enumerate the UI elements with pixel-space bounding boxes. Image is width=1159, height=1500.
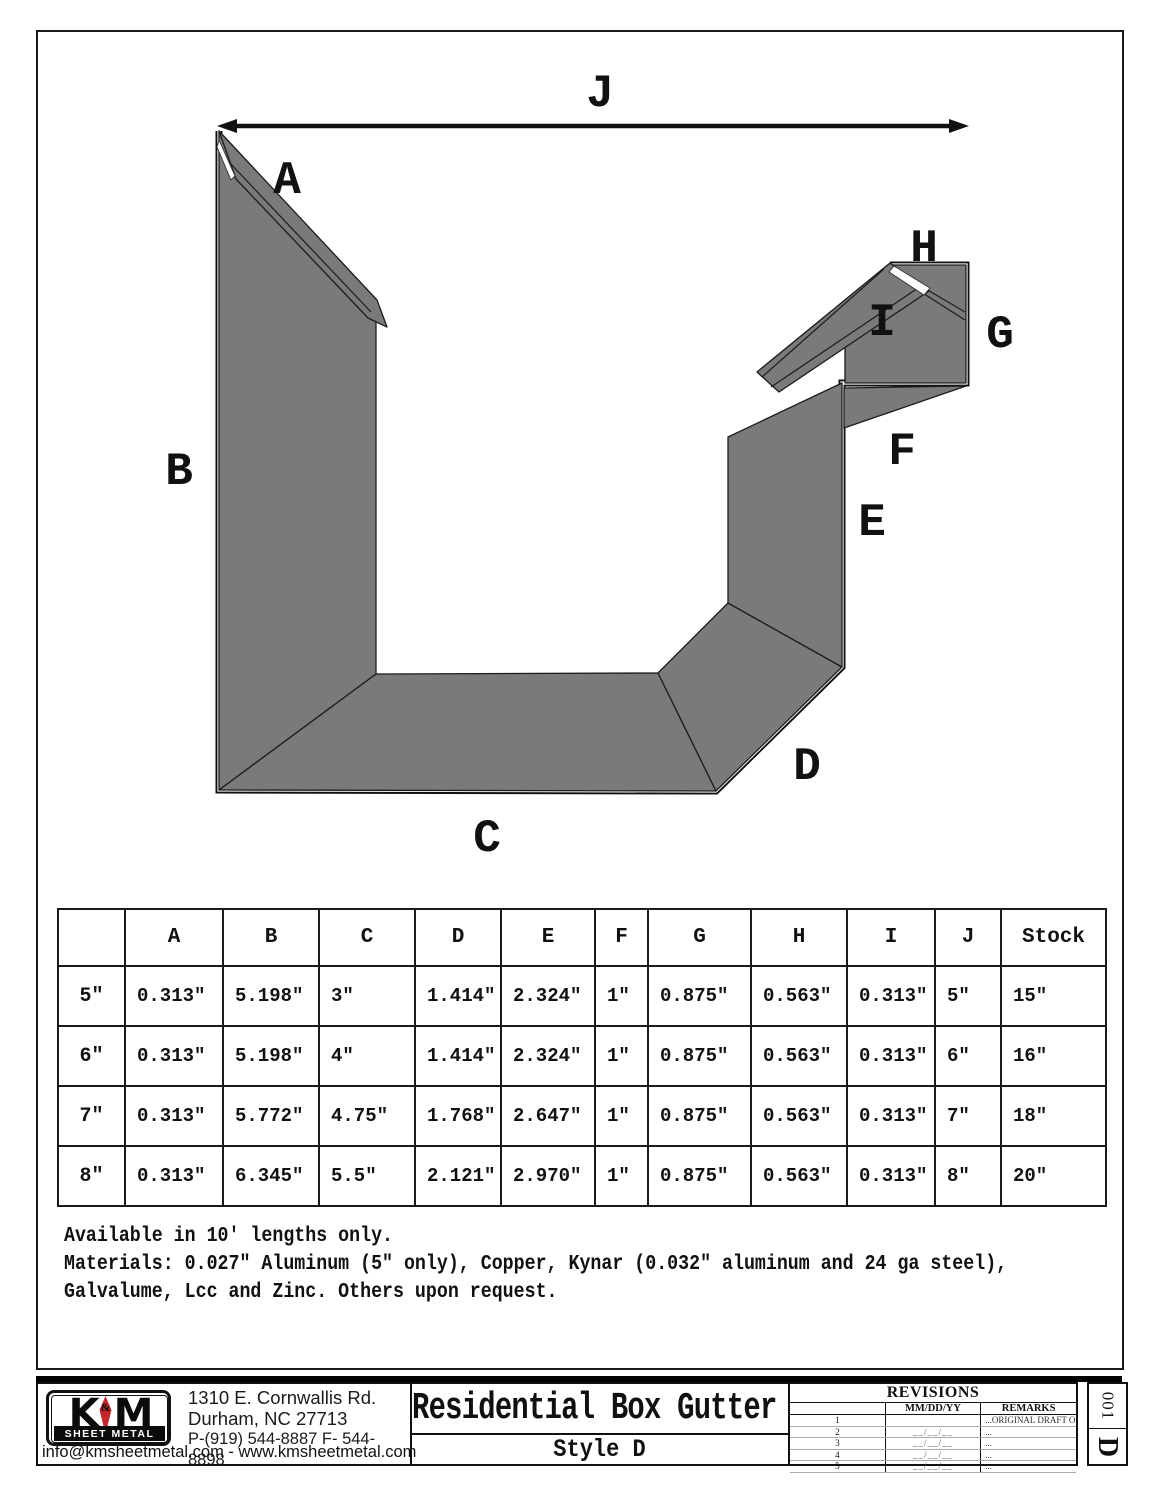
table-cell: 1" (595, 1146, 648, 1206)
revisions-header-row: MM/DD/YY REMARKS (790, 1403, 1076, 1415)
revision-number: 4 (790, 1449, 885, 1461)
table-cell: 1" (595, 1026, 648, 1086)
table-cell: 0.313" (847, 1086, 935, 1146)
sheet-letter: D (1091, 1436, 1123, 1456)
table-cell: 0.563" (751, 1146, 847, 1206)
table-cell: 5.772" (223, 1086, 319, 1146)
table-cell: 5.198" (223, 1026, 319, 1086)
column-header: D (415, 909, 501, 966)
table-cell: 2.970" (501, 1146, 595, 1206)
column-header: E (501, 909, 595, 966)
table-cell: 1.414" (415, 1026, 501, 1086)
table-cell: 0.875" (648, 1146, 751, 1206)
column-header: H (751, 909, 847, 966)
title-cell: Residential Box Gutter Style D (412, 1384, 790, 1464)
table-cell: 0.313" (125, 1086, 223, 1146)
column-header: I (847, 909, 935, 966)
revision-row: 3__/__/__... (790, 1438, 1076, 1450)
table-cell: 3" (319, 966, 415, 1026)
company-logo: K & M SHEET METAL (46, 1390, 171, 1446)
dimension-label-f: F (888, 426, 916, 478)
table-cell: 1" (595, 966, 648, 1026)
table-cell: 0.563" (751, 966, 847, 1026)
table-cell: 6" (935, 1026, 1001, 1086)
revision-row: 5__/__/__... (790, 1461, 1076, 1473)
table-row: 6"0.313"5.198"4"1.414"2.324"1"0.875"0.56… (58, 1026, 1106, 1086)
drawing-style: Style D (412, 1435, 788, 1464)
revision-remarks-header: REMARKS (981, 1403, 1076, 1415)
revision-remarks: ...ORIGINAL DRAFT OF DRAWING (981, 1415, 1076, 1427)
note-line: Galvalume, Lcc and Zinc. Others upon req… (64, 1278, 1007, 1306)
table-cell: 0.875" (648, 1086, 751, 1146)
table-cell: 0.563" (751, 1086, 847, 1146)
dimension-label-a: A (273, 155, 301, 207)
table-cell: 0.563" (751, 1026, 847, 1086)
table-row: 5"0.313"5.198"3"1.414"2.324"1"0.875"0.56… (58, 966, 1106, 1026)
table-cell: 2.647" (501, 1086, 595, 1146)
table-cell: 2.324" (501, 966, 595, 1026)
row-label: 8" (58, 1146, 125, 1206)
table-cell: 15" (1001, 966, 1106, 1026)
column-header: J (935, 909, 1001, 966)
table-row: 7"0.313"5.772"4.75"1.768"2.647"1"0.875"0… (58, 1086, 1106, 1146)
table-row: 8"0.313"6.345"5.5"2.121"2.970"1"0.875"0.… (58, 1146, 1106, 1206)
table-cell: 0.313" (125, 966, 223, 1026)
dimensions-table: ABCDEFGHIJStock 5"0.313"5.198"3"1.414"2.… (57, 908, 1107, 1207)
logo-subtitle: SHEET METAL (54, 1426, 165, 1441)
revision-number-header (790, 1403, 885, 1415)
table-corner-cell (58, 909, 125, 966)
dimension-label-h: H (910, 223, 938, 275)
revision-row: 4__/__/__... (790, 1449, 1076, 1461)
revision-row: 2__/__/__... (790, 1426, 1076, 1438)
drawing-style-text: Style D (554, 1435, 646, 1464)
column-header: C (319, 909, 415, 966)
email-web-line: info@kmsheetmetal.com - www.kmsheetmetal… (42, 1443, 416, 1462)
step-underside-face (844, 386, 966, 428)
dimension-label-b: B (165, 446, 193, 498)
sheet-number: 001 (1098, 1392, 1118, 1421)
revision-remarks: ... (981, 1449, 1076, 1461)
column-header: A (125, 909, 223, 966)
table-cell: 0.875" (648, 1026, 751, 1086)
table-cell: 0.313" (125, 1026, 223, 1086)
gutter-profile-drawing: J A B C D E F G H I (36, 30, 1122, 890)
dimension-label-d: D (793, 741, 821, 793)
table-cell: 0.313" (847, 966, 935, 1026)
notes-block: Available in 10' lengths only. Materials… (64, 1222, 1159, 1306)
revision-remarks: ... (981, 1438, 1076, 1450)
column-header: B (223, 909, 319, 966)
note-line: Available in 10' lengths only. (64, 1222, 1007, 1250)
revision-date: __/__/__ (885, 1426, 980, 1438)
dimension-arrow-j (217, 119, 969, 133)
dimension-label-g: G (986, 309, 1014, 361)
table-cell: 4" (319, 1026, 415, 1086)
table-cell: 18" (1001, 1086, 1106, 1146)
revision-number: 1 (790, 1415, 885, 1427)
sheet-id-box: 001 D (1087, 1382, 1128, 1466)
revision-date: __/__/__ (885, 1438, 980, 1450)
revision-date-header: MM/DD/YY (885, 1403, 980, 1415)
table-cell: 0.875" (648, 966, 751, 1026)
drawing-title-text: Residential Box Gutter (412, 1387, 777, 1430)
row-label: 5" (58, 966, 125, 1026)
revision-date (885, 1415, 980, 1427)
table-cell: 5.198" (223, 966, 319, 1026)
dimension-label-i: I (868, 297, 896, 349)
sheet-number-cell: 001 (1089, 1384, 1126, 1429)
sheet-letter-cell: D (1089, 1429, 1126, 1464)
revision-row: 1...ORIGINAL DRAFT OF DRAWING (790, 1415, 1076, 1427)
table-cell: 6.345" (223, 1146, 319, 1206)
revision-number: 5 (790, 1461, 885, 1473)
revisions-cell: REVISIONS MM/DD/YY REMARKS 1...ORIGINAL … (790, 1384, 1076, 1464)
revision-remarks: ... (981, 1461, 1076, 1473)
table-cell: 1.768" (415, 1086, 501, 1146)
dimension-label-e: E (858, 497, 886, 549)
table-cell: 2.324" (501, 1026, 595, 1086)
table-header-row: ABCDEFGHIJStock (58, 909, 1106, 966)
table-cell: 20" (1001, 1146, 1106, 1206)
drawing-sheet-page: J A B C D E F G H I ABCDEFGHIJStock 5"0.… (0, 0, 1159, 1500)
table-cell: 1" (595, 1086, 648, 1146)
address-line-1: 1310 E. Cornwallis Rd. (188, 1387, 410, 1408)
note-line: Materials: 0.027" Aluminum (5" only), Co… (64, 1250, 1007, 1278)
revision-date: __/__/__ (885, 1449, 980, 1461)
address-line-2: Durham, NC 27713 (188, 1408, 410, 1429)
revision-number: 2 (790, 1426, 885, 1438)
dimension-label-c: C (473, 813, 501, 865)
table-cell: 5" (935, 966, 1001, 1026)
row-label: 7" (58, 1086, 125, 1146)
dimension-label-j: J (586, 68, 614, 120)
table-cell: 16" (1001, 1026, 1106, 1086)
drawing-title: Residential Box Gutter (412, 1384, 788, 1435)
column-header: F (595, 909, 648, 966)
column-header: Stock (1001, 909, 1106, 966)
row-label: 6" (58, 1026, 125, 1086)
revision-remarks: ... (981, 1426, 1076, 1438)
revision-number: 3 (790, 1438, 885, 1450)
revisions-table: REVISIONS MM/DD/YY REMARKS 1...ORIGINAL … (790, 1384, 1076, 1473)
revisions-title: REVISIONS (790, 1384, 1076, 1403)
table-cell: 0.313" (847, 1146, 935, 1206)
table-cell: 5.5" (319, 1146, 415, 1206)
column-header: G (648, 909, 751, 966)
revision-date: __/__/__ (885, 1461, 980, 1473)
table-cell: 0.313" (847, 1026, 935, 1086)
table-cell: 0.313" (125, 1146, 223, 1206)
table-cell: 1.414" (415, 966, 501, 1026)
table-cell: 8" (935, 1146, 1001, 1206)
svg-text:&: & (100, 1400, 110, 1414)
table-cell: 2.121" (415, 1146, 501, 1206)
title-block: K & M SHEET METAL 1310 E. Cornwallis Rd.… (36, 1382, 1078, 1466)
table-cell: 7" (935, 1086, 1001, 1146)
company-cell: K & M SHEET METAL 1310 E. Cornwallis Rd.… (38, 1384, 412, 1464)
logo-frame: K & M SHEET METAL (51, 1395, 168, 1443)
table-cell: 4.75" (319, 1086, 415, 1146)
